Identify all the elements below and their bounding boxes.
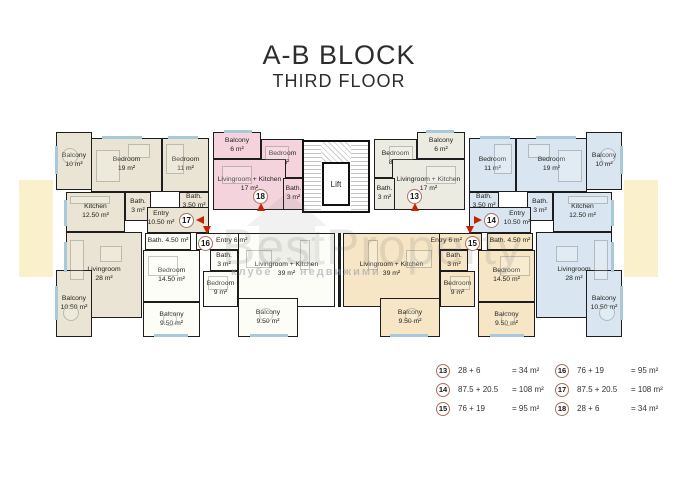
room-label-entry6: Entry 6 m² [216, 237, 268, 246]
furniture-icon [528, 144, 550, 158]
furniture-icon [259, 308, 273, 322]
furniture-icon [556, 246, 578, 262]
window-marking [154, 334, 188, 337]
window-marking [102, 136, 142, 139]
room-bath450-apt16: Bath. 4.50 m² [145, 233, 191, 250]
furniture-icon [426, 166, 456, 184]
legend-unit-badge: 17 [555, 383, 569, 397]
furniture-icon [70, 196, 110, 204]
legend-column-1: 1328 + 6= 34 m²1487.5 + 20.5= 108 m²1576… [436, 363, 544, 420]
legend-unit-badge: 13 [436, 364, 450, 378]
lift-label: Lift [331, 180, 342, 189]
furniture-icon [62, 148, 78, 164]
legend-total-area: = 95 m² [512, 404, 539, 413]
unit-marker-13: 13 [407, 189, 422, 204]
window-marking [426, 130, 454, 133]
lift: Lift [322, 162, 350, 206]
legend-total-area: = 108 m² [631, 385, 663, 394]
furniture-icon [128, 144, 150, 158]
unit-marker-15: 15 [465, 236, 480, 251]
window-marking [620, 146, 623, 174]
furniture-icon [300, 240, 310, 270]
room-bath3-apt18: Bath. 3 m² [283, 178, 304, 210]
furniture-icon [558, 150, 582, 182]
room-balcony1050-apt17: Balcony 10.50 m² [56, 270, 92, 337]
window-marking [536, 136, 576, 139]
legend-unit-badge: 18 [555, 402, 569, 416]
room-bath450-apt15: Bath. 4.50 m² [487, 233, 533, 250]
unit-marker-16: 16 [198, 236, 213, 251]
right-adjacent-strip [624, 180, 658, 277]
room-bath3-apt16: Bath. 3 m² [210, 250, 238, 271]
stair-treads-right [351, 142, 368, 211]
window-marking [480, 136, 510, 139]
legend-formula: 28 + 6 [458, 366, 512, 375]
furniture-icon [599, 305, 615, 321]
window-marking [620, 286, 623, 320]
furniture-icon [63, 305, 79, 321]
window-marking [64, 242, 67, 272]
furniture-icon [148, 256, 178, 276]
legend-formula: 76 + 19 [458, 404, 512, 413]
legend-row-15: 1576 + 19= 95 m² [436, 401, 544, 416]
party-wall [338, 233, 341, 307]
legend-row-16: 1676 + 19= 95 m² [555, 363, 663, 378]
furniture-icon [246, 250, 272, 268]
legend-formula: 28 + 6 [577, 404, 631, 413]
window-marking [611, 200, 614, 226]
furniture-icon [406, 250, 432, 268]
window-marking [490, 334, 524, 337]
stair-treads-left [304, 142, 321, 211]
room-label-entry6: Entry 6 m² [410, 237, 462, 246]
furniture-icon [222, 166, 252, 184]
window-marking [55, 146, 58, 174]
left-adjacent-strip [19, 180, 53, 277]
entry-arrow-icon-15 [466, 226, 474, 234]
furniture-icon [96, 150, 120, 182]
room-label-entry: Entry 10.50 m² [144, 210, 178, 228]
legend-unit-badge: 16 [555, 364, 569, 378]
furniture-icon [265, 146, 289, 160]
entry-arrow-icon-16 [203, 226, 211, 234]
window-marking [390, 334, 428, 337]
entry-arrow-icon-18 [257, 203, 265, 211]
room-balcony1050-apt14: Balcony 10.50 m² [586, 270, 622, 337]
legend-formula: 76 + 19 [577, 366, 631, 375]
furniture-icon [100, 246, 122, 262]
legend-row-17: 1787.5 + 20.5= 108 m² [555, 382, 663, 397]
furniture-icon [166, 144, 184, 174]
furniture-icon [389, 146, 413, 160]
furniture-icon [594, 240, 608, 280]
furniture-icon [70, 240, 84, 280]
furniture-icon [568, 196, 608, 204]
unit-marker-14: 14 [484, 213, 499, 228]
legend-formula: 87.5 + 20.5 [577, 385, 631, 394]
furniture-icon [500, 256, 530, 276]
room-label-entry: Entry 10.50 m² [500, 210, 534, 228]
legend-total-area: = 108 m² [512, 385, 544, 394]
legend-row-13: 1328 + 6= 34 m² [436, 363, 544, 378]
window-marking [64, 200, 67, 226]
furniture-icon [405, 308, 419, 322]
furniture-icon [600, 148, 616, 164]
furniture-icon [368, 240, 378, 270]
window-marking [250, 334, 288, 337]
legend-total-area: = 95 m² [631, 366, 658, 375]
room-bath3-apt13: Bath. 3 m² [374, 178, 395, 210]
furniture-icon [208, 276, 228, 290]
legend-column-2: 1676 + 19= 95 m²1787.5 + 20.5= 108 m²182… [555, 363, 663, 420]
window-marking [55, 286, 58, 320]
legend-formula: 87.5 + 20.5 [458, 385, 512, 394]
floor-plan-page: A-B BLOCK THIRD FLOOR Balcony 10 m²Bedro… [0, 0, 678, 480]
page-subtitle: THIRD FLOOR [0, 71, 678, 92]
entry-arrow-icon-14 [474, 216, 482, 224]
unit-marker-18: 18 [253, 189, 268, 204]
window-marking [168, 136, 198, 139]
furniture-icon [501, 312, 515, 326]
legend-row-14: 1487.5 + 20.5= 108 m² [436, 382, 544, 397]
room-bath3-apt15: Bath. 3 m² [440, 250, 468, 271]
room-balcony6-apt18: Balcony 6 m² [213, 132, 261, 159]
page-title: A-B BLOCK [0, 40, 678, 71]
furniture-icon [450, 276, 470, 290]
room-balcony6-apt13: Balcony 6 m² [417, 132, 465, 159]
legend-row-18: 1828 + 6= 34 m² [555, 401, 663, 416]
furniture-icon [163, 312, 177, 326]
stair-landing [321, 142, 351, 162]
legend-total-area: = 34 m² [631, 404, 658, 413]
window-marking [611, 242, 614, 272]
legend-unit-badge: 14 [436, 383, 450, 397]
unit-marker-17: 17 [179, 213, 194, 228]
furniture-icon [494, 144, 512, 174]
window-marking [224, 130, 252, 133]
legend-unit-badge: 15 [436, 402, 450, 416]
entry-arrow-icon-13 [411, 203, 419, 211]
legend-total-area: = 34 m² [512, 366, 539, 375]
entry-arrow-icon-17 [196, 216, 204, 224]
